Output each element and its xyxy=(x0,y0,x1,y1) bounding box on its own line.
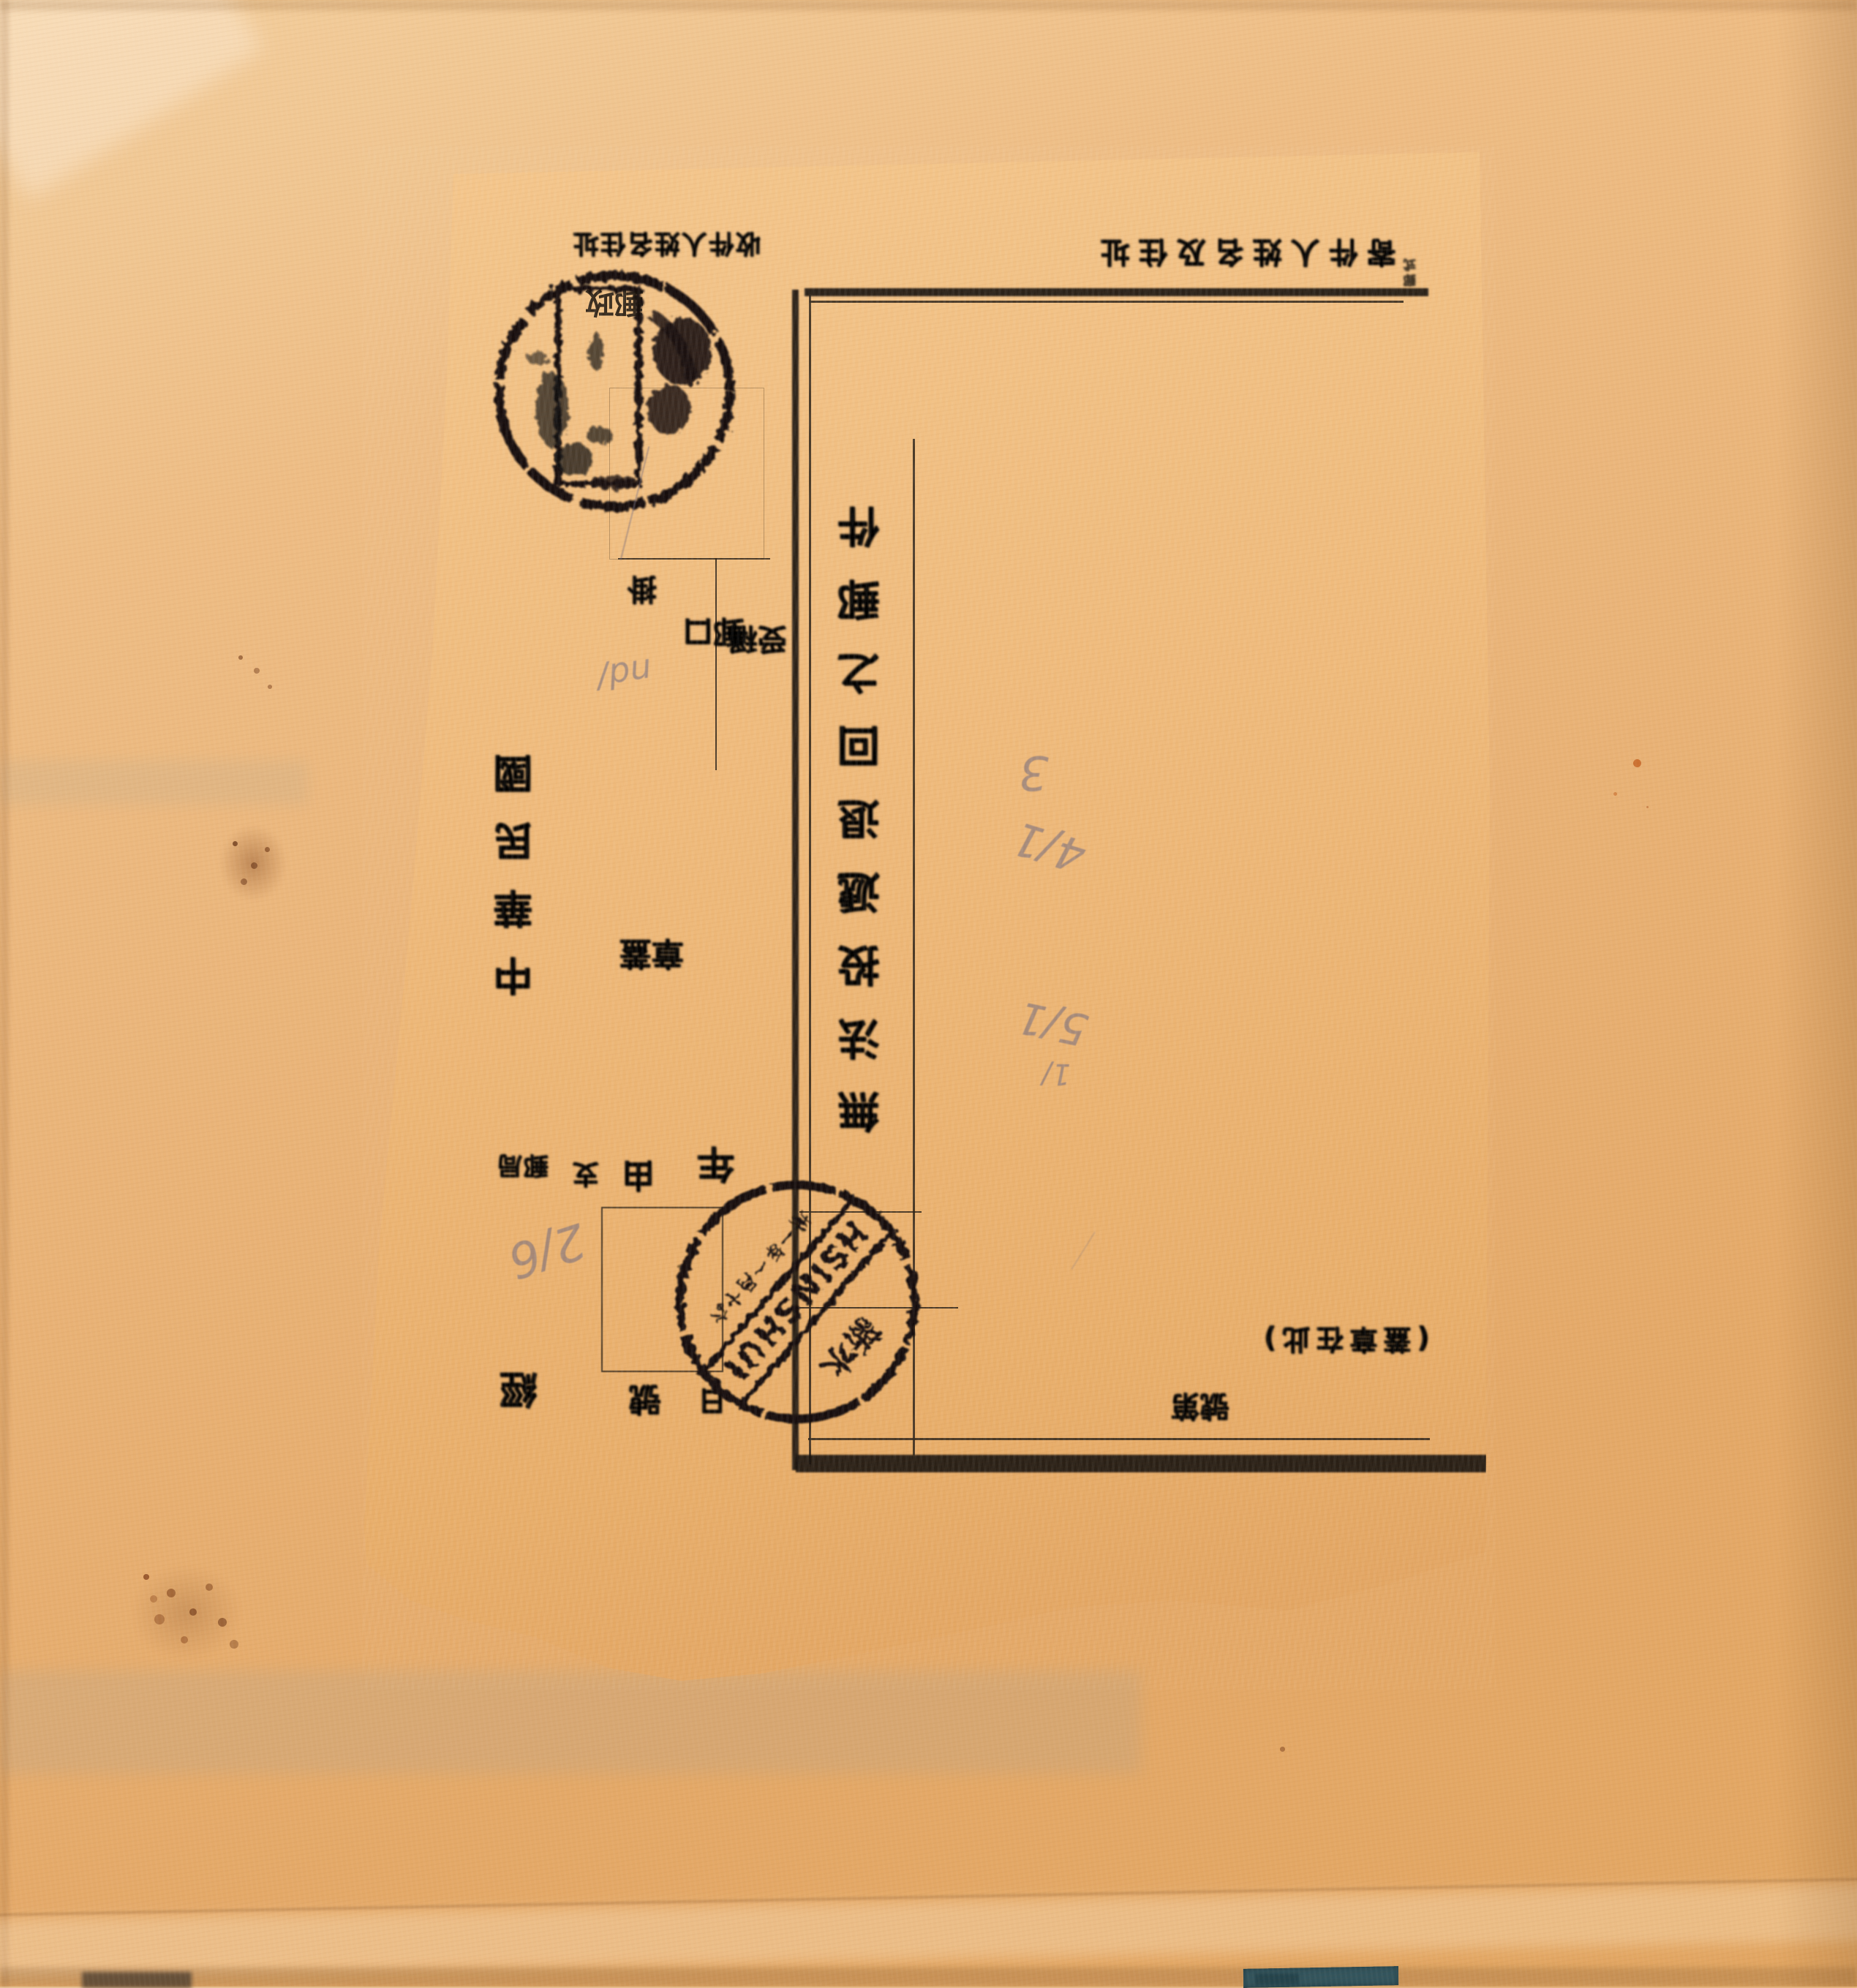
glyph-you: 由 xyxy=(622,1159,655,1191)
top-postmark-glyphs: 郵政 xyxy=(585,285,644,319)
stain-cluster-blur xyxy=(132,1565,241,1660)
frame-top-border-thin xyxy=(810,301,1404,303)
field-label-lone: 掛 xyxy=(628,574,657,603)
glyph-jing: 經 xyxy=(500,1369,538,1407)
hsinshui-postmark: HSINSHUI 新水 卅一年一月十六 xyxy=(669,1174,925,1430)
seal-pair-glyphs: 蓋章 xyxy=(623,889,661,971)
field-label-col2: 稱受 xyxy=(731,574,765,655)
scanned-album-page: { "scan": { "description_tokens": { "ori… xyxy=(0,0,1857,1987)
frame-bottom-border-thin xyxy=(808,1438,1430,1440)
hsinshui-place-glyphs: 新水 xyxy=(813,1310,887,1388)
pencil-mark-1slash: 1∕ xyxy=(1042,1061,1071,1087)
pencil-mark-26: 2∕6 xyxy=(503,1218,590,1283)
aging-streak-small xyxy=(0,761,307,805)
frame-top-border-thick xyxy=(805,288,1428,296)
stain-cluster-bottom-left xyxy=(143,1574,149,1580)
stain-mid-left-dots xyxy=(233,841,238,846)
form-title-column: 無法投遞退回之郵件 xyxy=(841,464,898,1134)
pencil-stroke-faint xyxy=(1071,1232,1095,1270)
page-top-edge-shadow xyxy=(0,0,1857,10)
small-glyph: 支 xyxy=(573,1160,599,1186)
number-pair-glyphs: 第號 xyxy=(1174,1360,1213,1422)
mini-table-hline xyxy=(618,558,770,560)
speck-lower-right xyxy=(1280,1747,1285,1752)
stain-mid-left xyxy=(219,825,287,901)
recipient-label-row: 收件人姓名住址 xyxy=(561,230,761,255)
bureau-pair-glyphs: 郵局 xyxy=(496,1153,549,1178)
pencil-mark-41: 4∕1 xyxy=(1009,817,1091,878)
pencil-mark-3: 3 xyxy=(1019,750,1049,793)
dark-edge-bottom-left xyxy=(82,1972,192,1988)
page-corner-crease xyxy=(0,0,263,200)
top-postmark: 郵政 xyxy=(486,263,742,519)
era-date-column: 中華民國 xyxy=(497,718,549,996)
sender-label-row: 寄件人姓名及住址 xyxy=(1071,237,1396,266)
aging-streak xyxy=(0,1671,1141,1774)
orange-speck-right xyxy=(1633,759,1641,767)
corner-form-mark: 郵式 xyxy=(1406,252,1420,287)
pasted-postal-form: 無法投遞退回之郵件 中華民國 蓋章 口郵 稱受 掛 郵局 支 由 年 日 號 經… xyxy=(362,146,1496,1690)
blue-strip-dark-patch xyxy=(1255,1973,1299,1985)
frame-bottom-border-thick xyxy=(796,1455,1488,1472)
page-bottom-shadow xyxy=(0,1968,1857,1987)
field-label-col1: 口郵 xyxy=(685,569,722,648)
stain-small-left xyxy=(238,655,243,660)
pencil-mark-nd: nd∕ xyxy=(595,655,653,692)
glyph-number: 號 xyxy=(629,1382,661,1415)
bracket-note-row: (蓋章在此) xyxy=(1225,1325,1430,1353)
page-right-edge-shadow xyxy=(1777,0,1857,1987)
pencil-mark-51: 5∕1 xyxy=(1014,997,1091,1050)
